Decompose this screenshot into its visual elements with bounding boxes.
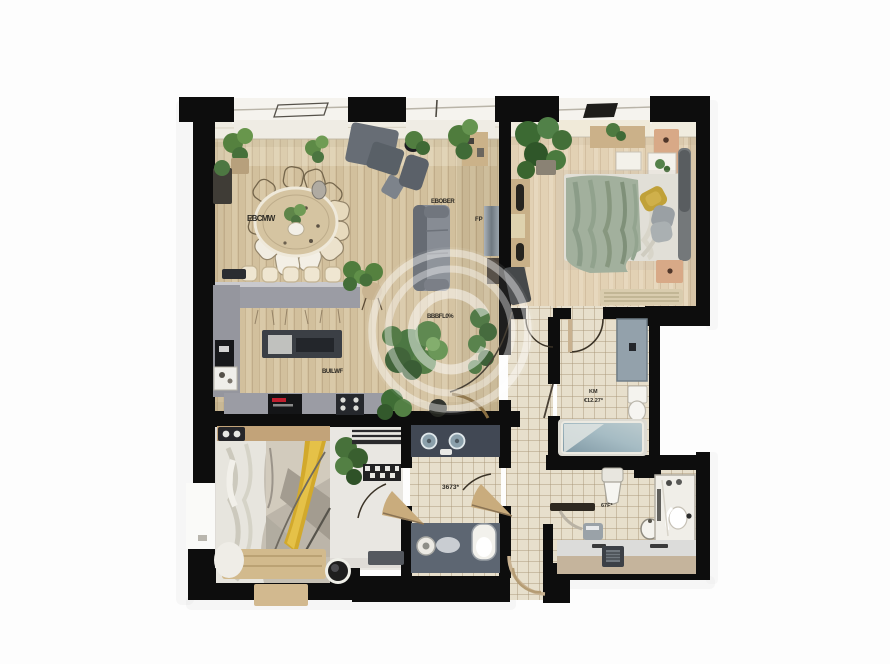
svg-text:3673*: 3673* bbox=[442, 484, 459, 491]
svg-text:EBOBER: EBOBER bbox=[431, 199, 455, 205]
svg-text:67F*: 67F* bbox=[601, 503, 613, 509]
svg-text:FP: FP bbox=[475, 217, 483, 223]
svg-text:EBCMW: EBCMW bbox=[247, 214, 276, 223]
svg-text:€12.27*: €12.27* bbox=[584, 398, 604, 404]
svg-text:BBBFL0%: BBBFL0% bbox=[427, 314, 454, 320]
svg-text:KM: KM bbox=[589, 389, 598, 395]
svg-text:BUILWF: BUILWF bbox=[322, 369, 343, 375]
